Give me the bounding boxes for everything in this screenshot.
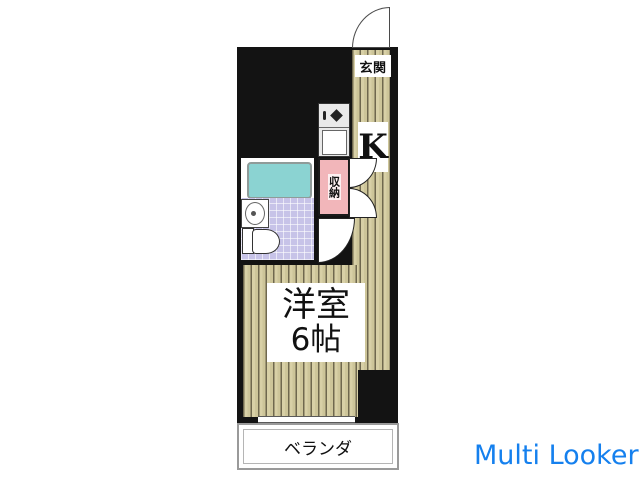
- room-label-size: 6帖: [291, 324, 342, 357]
- watermark-text: Multi Looker: [474, 438, 634, 472]
- balcony-window: [258, 416, 355, 423]
- entrance-label: 玄関: [355, 55, 391, 77]
- entrance-door-arc: [352, 7, 390, 48]
- kitchen-sink: [322, 130, 347, 155]
- balcony-label: ベランダ: [278, 433, 358, 460]
- storage-label-text: 収納: [328, 174, 341, 200]
- bathtub: [247, 162, 312, 199]
- room-label: 洋室 6帖: [267, 283, 365, 362]
- stove-knob-icon: [323, 111, 326, 120]
- toilet-bowl: [252, 229, 280, 254]
- room-label-name: 洋室: [282, 287, 350, 324]
- entrance-label-text: 玄関: [359, 57, 386, 76]
- wash-basin-drain: [251, 211, 256, 216]
- kitchen-counter: [318, 103, 350, 157]
- stove-top: [319, 104, 349, 128]
- bathroom-unit: [241, 158, 314, 260]
- stove-burner-icon: [330, 109, 343, 122]
- storage-closet: 収納: [318, 158, 350, 216]
- balcony: ベランダ: [237, 423, 399, 470]
- pillar: [358, 370, 398, 424]
- wash-basin: [241, 199, 269, 228]
